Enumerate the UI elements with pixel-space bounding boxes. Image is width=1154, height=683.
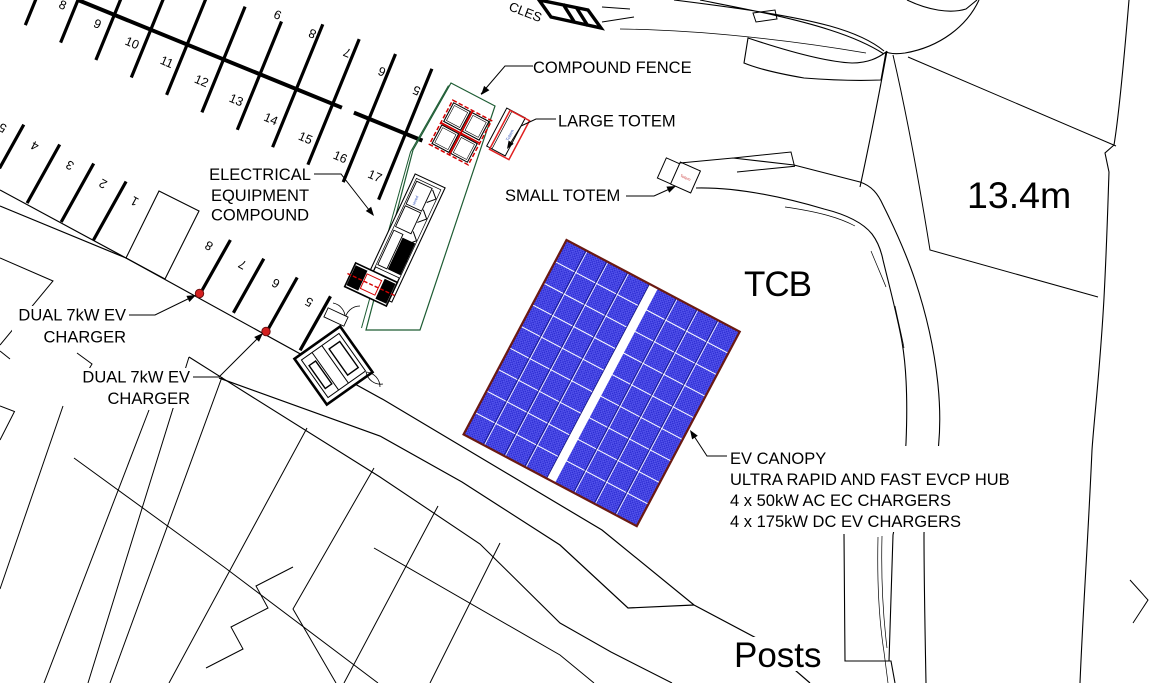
svg-text:4 x 50kW AC EC CHARGERS: 4 x 50kW AC EC CHARGERS bbox=[730, 492, 951, 510]
svg-text:ELECTRICAL: ELECTRICAL bbox=[209, 166, 311, 184]
svg-text:COMPOUND FENCE: COMPOUND FENCE bbox=[533, 59, 692, 77]
svg-text:SMALL TOTEM: SMALL TOTEM bbox=[505, 187, 620, 205]
svg-text:EQUIPMENT: EQUIPMENT bbox=[211, 187, 309, 205]
svg-text:COMPOUND: COMPOUND bbox=[211, 207, 309, 225]
svg-text:CHARGER: CHARGER bbox=[43, 328, 126, 346]
svg-text:EV CANOPY: EV CANOPY bbox=[730, 450, 826, 468]
svg-text:4 x 175kW DC EV CHARGERS: 4 x 175kW DC EV CHARGERS bbox=[730, 513, 961, 531]
svg-text:DUAL 7kW EV: DUAL 7kW EV bbox=[82, 369, 190, 387]
svg-text:DUAL 7kW EV: DUAL 7kW EV bbox=[18, 307, 126, 325]
svg-text:LARGE TOTEM: LARGE TOTEM bbox=[558, 113, 676, 131]
svg-text:Posts: Posts bbox=[734, 636, 822, 675]
svg-text:CHARGER: CHARGER bbox=[107, 390, 190, 408]
svg-text:TCB: TCB bbox=[744, 265, 811, 304]
svg-text:ULTRA RAPID AND FAST EVCP HUB: ULTRA RAPID AND FAST EVCP HUB bbox=[730, 471, 1010, 489]
svg-text:13.4m: 13.4m bbox=[967, 174, 1071, 216]
